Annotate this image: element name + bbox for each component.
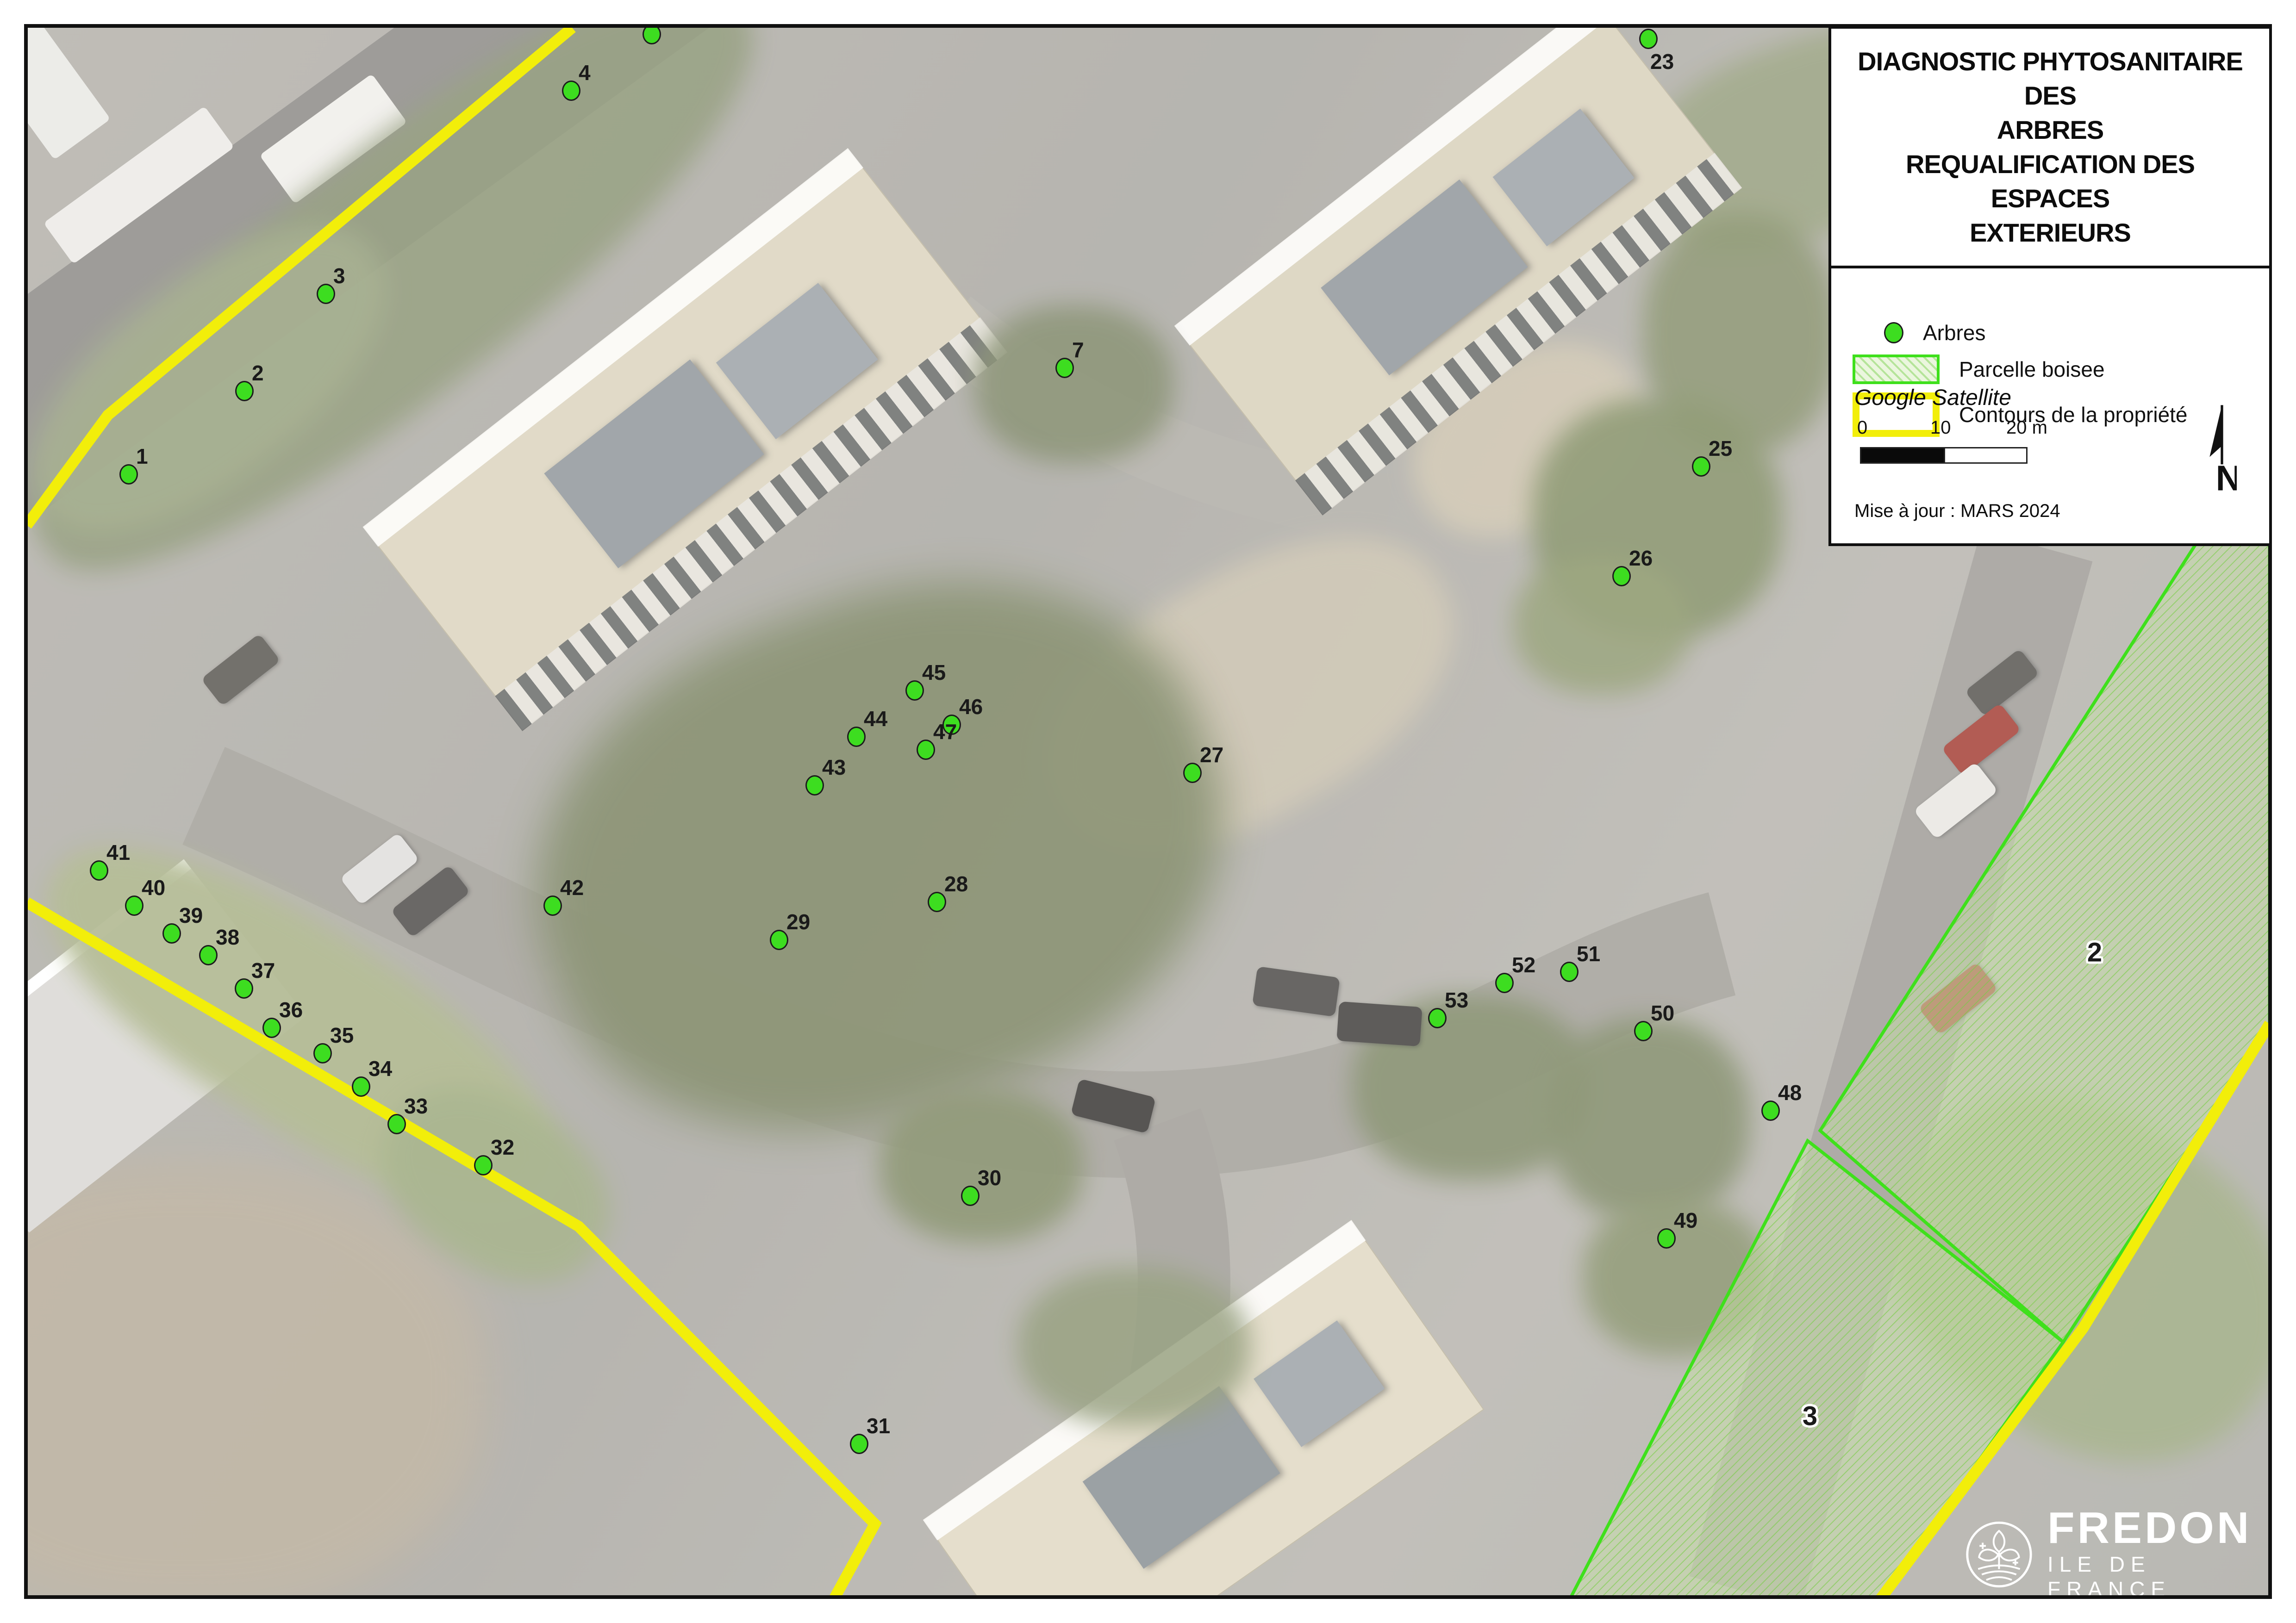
tree-marker	[917, 740, 935, 760]
map-title: DIAGNOSTIC PHYTOSANITAIRE DES ARBRES REQ…	[1831, 29, 2269, 268]
logo-region: ILE DE FRANCE	[2047, 1552, 2268, 1599]
tree-label: 34	[368, 1058, 392, 1079]
tree-label: 46	[959, 696, 983, 717]
tree-marker	[1428, 1008, 1447, 1028]
tree-label: 7	[1072, 339, 1084, 361]
tree-label: 1	[136, 446, 148, 467]
tree-label: 42	[560, 877, 584, 898]
tree-marker	[1560, 962, 1578, 982]
tree-label: 5	[659, 24, 671, 27]
tree-marker	[961, 1186, 980, 1206]
property-boundary	[28, 28, 572, 525]
tree-label: 25	[1709, 438, 1732, 459]
tree-marker	[235, 381, 254, 401]
tree-label: 26	[1629, 547, 1653, 569]
tree-marker	[199, 945, 218, 965]
tree-label: 48	[1778, 1082, 1802, 1103]
tree-label: 40	[142, 877, 165, 898]
parcel-label: 3	[1803, 1401, 1817, 1432]
tree-label: 38	[216, 927, 239, 948]
tree-marker	[262, 1018, 281, 1038]
tree-label: 2	[252, 362, 264, 384]
tree-marker	[643, 24, 661, 44]
tree-marker	[352, 1076, 370, 1097]
scale-bar-segment	[1944, 448, 2026, 462]
update-date: Mise à jour : MARS 2024	[1854, 501, 2060, 522]
property-boundary	[28, 902, 875, 1595]
tree-label: 41	[106, 842, 130, 863]
tree-marker	[119, 464, 138, 485]
scale-tick: 10	[1930, 417, 1951, 438]
tree-marker	[1639, 29, 1658, 49]
legend-tree-swatch	[1884, 322, 1903, 343]
tree-marker	[1657, 1228, 1676, 1249]
north-arrow-icon: N	[2200, 403, 2237, 495]
tree-marker	[543, 895, 562, 916]
tree-label: 4	[579, 62, 591, 83]
parcel-label: 2	[2087, 937, 2102, 968]
tree-label: 3	[333, 265, 345, 286]
scale-tick: 20 m	[2006, 417, 2047, 438]
legend-item-label: Parcelle boisee	[1959, 357, 2105, 382]
tree-marker	[235, 978, 253, 999]
tree-label: 49	[1674, 1210, 1697, 1231]
fredon-leaf-icon	[1963, 1515, 2035, 1594]
tree-label: 51	[1577, 943, 1600, 964]
tree-marker	[850, 1434, 868, 1454]
legend-item-label: Arbres	[1923, 320, 1985, 345]
tree-marker	[847, 727, 866, 747]
tree-label: 50	[1651, 1002, 1674, 1024]
tree-marker	[1692, 456, 1710, 477]
tree-marker	[1055, 358, 1074, 378]
tree-marker	[162, 923, 181, 944]
tree-marker	[90, 860, 108, 881]
svg-text:N: N	[2216, 458, 2237, 495]
tree-marker	[905, 680, 924, 701]
tree-label: 33	[404, 1095, 428, 1117]
tree-label: 30	[978, 1167, 1001, 1188]
tree-marker	[562, 81, 580, 101]
tree-label: 27	[1200, 744, 1223, 765]
tree-label: 43	[822, 757, 846, 778]
tree-label: 37	[251, 960, 275, 981]
tree-label: 29	[786, 911, 810, 933]
map-sheet: 1234572325262728293031323334353637383940…	[0, 0, 2296, 1623]
tree-marker	[928, 892, 946, 912]
basemap-source: Google Satellite	[1854, 385, 2011, 410]
tree-marker	[313, 1043, 332, 1063]
scale-bar-segment	[1861, 448, 1944, 462]
logo-name: FREDON	[2047, 1507, 2268, 1549]
tree-label: 35	[330, 1025, 354, 1046]
tree-label: 31	[867, 1415, 890, 1436]
legend-box: DIAGNOSTIC PHYTOSANITAIRE DES ARBRES REQ…	[1828, 26, 2272, 546]
tree-label: 47	[933, 721, 957, 742]
tree-marker	[387, 1114, 406, 1134]
tree-marker	[317, 284, 335, 304]
tree-label: 23	[1650, 51, 1674, 72]
tree-label: 53	[1445, 989, 1468, 1011]
tree-marker	[1634, 1021, 1653, 1041]
tree-label: 44	[864, 708, 887, 729]
legend-parcel-swatch	[1853, 354, 1940, 384]
tree-label: 52	[1512, 954, 1535, 976]
tree-marker	[770, 930, 788, 950]
tree-label: 39	[179, 905, 203, 926]
tree-marker	[1761, 1101, 1780, 1121]
tree-marker	[1183, 763, 1202, 783]
tree-label: 36	[279, 999, 303, 1020]
tree-label: 28	[944, 873, 968, 895]
tree-label: 45	[922, 662, 946, 683]
tree-label: 32	[491, 1137, 514, 1158]
tree-marker	[1495, 973, 1514, 993]
fredon-logo: FREDON ILE DE FRANCE	[1963, 1507, 2268, 1599]
tree-marker	[1612, 566, 1631, 586]
scale-tick: 0	[1857, 417, 1867, 438]
tree-marker	[125, 895, 143, 916]
tree-marker	[474, 1155, 493, 1175]
tree-marker	[805, 775, 824, 796]
